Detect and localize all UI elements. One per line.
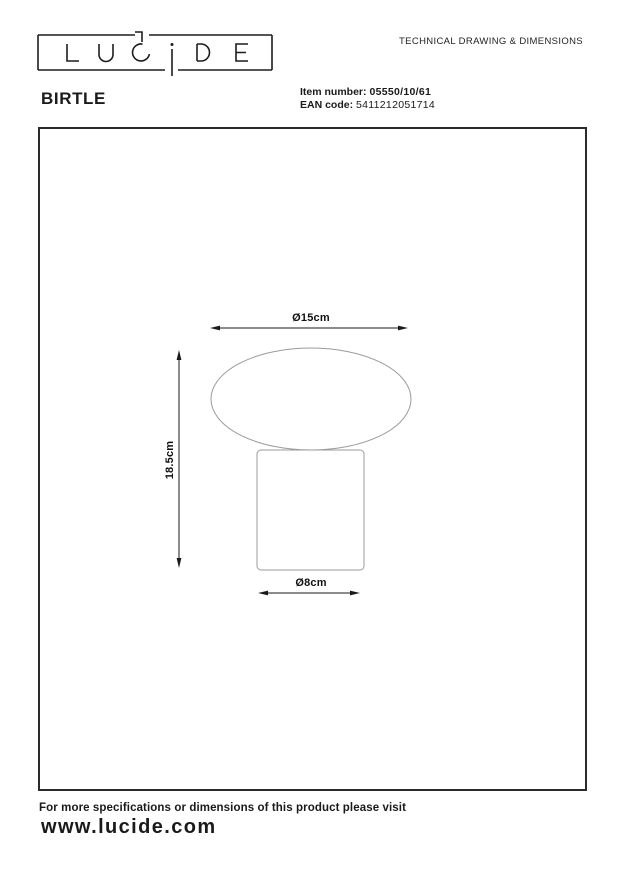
arrow-left-icon [258, 591, 268, 596]
item-number-value: 05550/10/61 [369, 86, 431, 98]
lamp-base-outline [257, 450, 364, 570]
ean-code-label: EAN code: [300, 99, 353, 111]
dimension-label-height: 18.5cm [164, 430, 178, 490]
dimension-label-shade-diameter: Ø15cm [231, 312, 391, 324]
drawing-frame: Ø15cm 18.5cm Ø8cm [38, 127, 587, 791]
item-number-row: Item number: 05550/10/61 [300, 86, 435, 99]
lamp-shade-outline [211, 348, 411, 450]
document-title: TECHNICAL DRAWING & DIMENSIONS [399, 36, 583, 47]
footer-note: For more specifications or dimensions of… [39, 802, 406, 814]
arrow-up-icon [177, 350, 182, 360]
ean-code-value: 5411212051714 [356, 99, 435, 111]
arrow-right-icon [398, 326, 408, 331]
logo-i-dot [171, 43, 174, 46]
lamp-technical-drawing [40, 129, 584, 788]
ean-code-row: EAN code: 5411212051714 [300, 99, 435, 112]
lucide-logo [37, 30, 273, 78]
arrow-right-icon [350, 591, 360, 596]
technical-drawing-page: TECHNICAL DRAWING & DIMENSIONS BIRTLE It… [0, 0, 620, 877]
arrow-left-icon [210, 326, 220, 331]
footer-website: www.lucide.com [41, 816, 217, 839]
product-name: BIRTLE [41, 89, 106, 109]
arrow-down-icon [177, 558, 182, 568]
dimension-label-base-diameter: Ø8cm [231, 577, 391, 589]
product-codes: Item number: 05550/10/61 EAN code: 54112… [300, 86, 435, 112]
item-number-label: Item number: [300, 86, 367, 98]
